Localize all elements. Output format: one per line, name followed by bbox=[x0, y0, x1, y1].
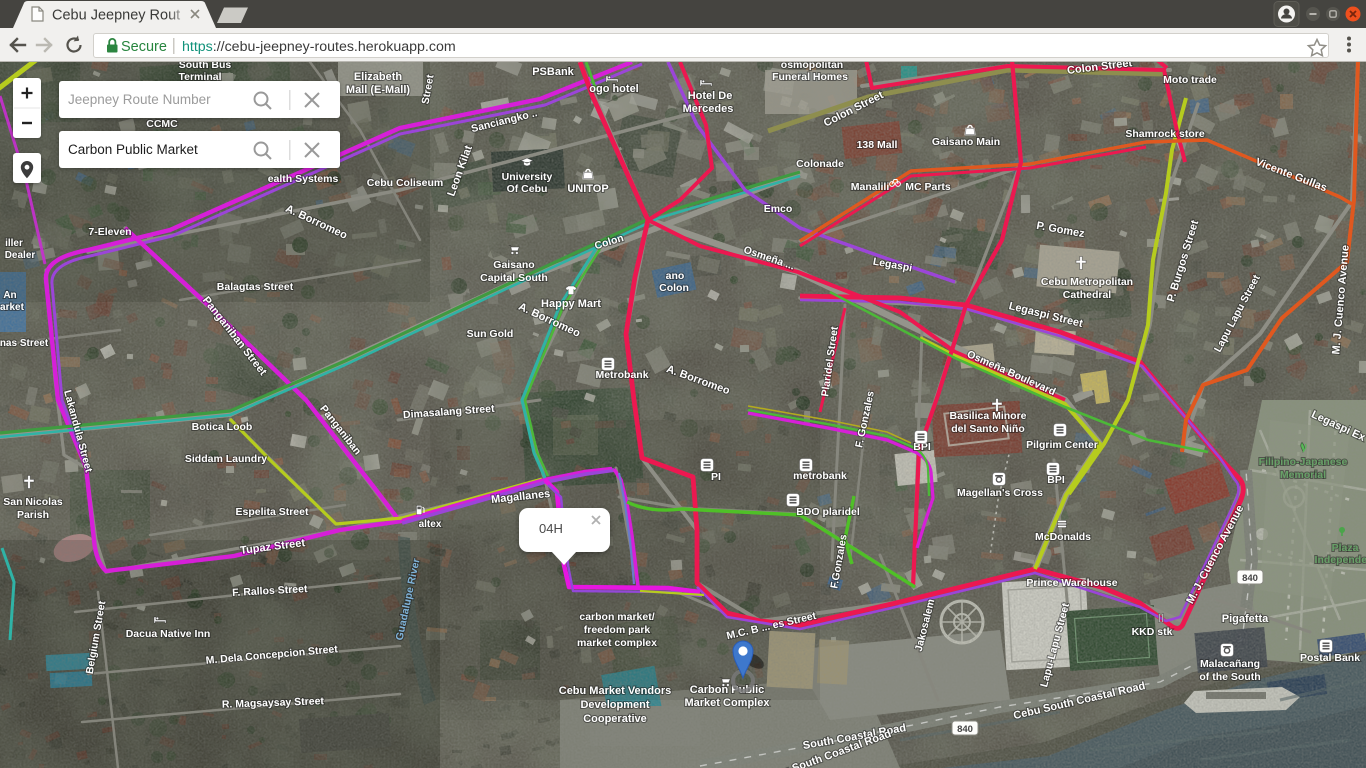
svg-text:Postal Bank: Postal Bank bbox=[1300, 652, 1360, 664]
svg-text:UNITOP: UNITOP bbox=[567, 183, 608, 195]
svg-text:Sun Gold: Sun Gold bbox=[467, 328, 514, 340]
svg-text:Gaisano Main: Gaisano Main bbox=[932, 136, 1000, 148]
svg-text:Plaza: Plaza bbox=[1332, 542, 1359, 554]
svg-text:Magellan's Cross: Magellan's Cross bbox=[957, 487, 1043, 499]
svg-text:Cathedral: Cathedral bbox=[1063, 289, 1112, 301]
svg-text:Development: Development bbox=[580, 699, 649, 711]
svg-text:Parish: Parish bbox=[17, 509, 49, 521]
svg-text:Pigafetta: Pigafetta bbox=[1222, 613, 1269, 625]
svg-text:Of Cebu: Of Cebu bbox=[507, 183, 548, 195]
svg-text:Emco: Emco bbox=[764, 203, 793, 215]
svg-text:altex: altex bbox=[419, 519, 442, 530]
svg-text:ano: ano bbox=[666, 270, 685, 282]
svg-text:Espelita Street: Espelita Street bbox=[236, 506, 309, 518]
svg-text:7-Eleven: 7-Eleven bbox=[88, 226, 131, 238]
svg-text:Gaisano: Gaisano bbox=[493, 259, 534, 271]
svg-text:University: University bbox=[502, 171, 553, 183]
svg-text:138 Mall: 138 Mall bbox=[857, 139, 898, 151]
svg-text:Balagtas Street: Balagtas Street bbox=[217, 281, 294, 293]
svg-text:freedom park: freedom park bbox=[584, 624, 651, 636]
svg-text:Independen: Independen bbox=[1315, 554, 1366, 566]
svg-text:Manalili: Manalili bbox=[851, 181, 890, 193]
svg-text:Siddam Laundry: Siddam Laundry bbox=[185, 453, 267, 465]
svg-text:Mall (E-Mall): Mall (E-Mall) bbox=[346, 84, 411, 96]
svg-text:Malacañang: Malacañang bbox=[1200, 658, 1260, 670]
svg-text:iller: iller bbox=[5, 238, 23, 249]
svg-text:Capital South: Capital South bbox=[480, 272, 548, 284]
svg-text:Prince Warehouse: Prince Warehouse bbox=[1026, 577, 1117, 589]
svg-text:Filipino-Japanese: Filipino-Japanese bbox=[1259, 456, 1348, 468]
svg-text:Botica Loob: Botica Loob bbox=[192, 421, 253, 433]
svg-text:840: 840 bbox=[957, 724, 973, 735]
svg-text:Cebu Market Vendors: Cebu Market Vendors bbox=[559, 685, 671, 697]
svg-text:Hotel De: Hotel De bbox=[688, 90, 733, 102]
svg-text:Cebu Jeepney Rout: Cebu Jeepney Rout bbox=[52, 8, 180, 24]
svg-text:Memorial: Memorial bbox=[1280, 469, 1326, 481]
svg-text:ealth Systems: ealth Systems bbox=[268, 173, 339, 185]
svg-text:Cebu Metropolitan: Cebu Metropolitan bbox=[1041, 276, 1133, 288]
svg-text:Moto trade: Moto trade bbox=[1163, 74, 1217, 86]
svg-text:Dacua Native Inn: Dacua Native Inn bbox=[126, 628, 211, 640]
svg-text:Market Complex: Market Complex bbox=[685, 697, 771, 709]
svg-text:Funeral Homes: Funeral Homes bbox=[772, 71, 848, 83]
svg-text:Shamrock store: Shamrock store bbox=[1125, 128, 1205, 140]
svg-text:Happy Mart: Happy Mart bbox=[541, 298, 601, 310]
svg-text:arket: arket bbox=[0, 302, 25, 313]
svg-text:nas Street: nas Street bbox=[0, 338, 49, 349]
svg-text:Mercedes: Mercedes bbox=[683, 103, 734, 115]
svg-text:Pilgrim Center: Pilgrim Center bbox=[1026, 439, 1098, 451]
svg-text:An: An bbox=[3, 290, 16, 301]
svg-text:MC Parts: MC Parts bbox=[905, 181, 951, 193]
svg-text:CCMC: CCMC bbox=[146, 118, 178, 130]
svg-text:Elizabeth: Elizabeth bbox=[354, 71, 403, 83]
svg-text:carbon market/: carbon market/ bbox=[579, 611, 654, 623]
svg-text:KKD stk: KKD stk bbox=[1132, 626, 1173, 638]
svg-text:Dealer: Dealer bbox=[5, 250, 36, 261]
svg-text:Cebu Coliseum: Cebu Coliseum bbox=[367, 177, 443, 189]
svg-text:San Nicolas: San Nicolas bbox=[3, 496, 63, 508]
svg-text:McDonalds: McDonalds bbox=[1035, 531, 1091, 543]
svg-text:ogo hotel: ogo hotel bbox=[589, 83, 639, 95]
svg-text:del Santo Niño: del Santo Niño bbox=[951, 423, 1025, 435]
svg-text:Colonade: Colonade bbox=[796, 158, 844, 170]
svg-text:840: 840 bbox=[1242, 573, 1258, 584]
svg-text:https://cebu-jeepney-routes.he: https://cebu-jeepney-routes.herokuapp.co… bbox=[182, 39, 456, 55]
svg-text:Secure: Secure bbox=[121, 39, 167, 55]
svg-text:PSBank: PSBank bbox=[532, 66, 574, 78]
svg-text:market complex: market complex bbox=[577, 637, 657, 649]
svg-text:of the South: of the South bbox=[1199, 671, 1260, 683]
svg-text:BDO plaridel: BDO plaridel bbox=[796, 506, 860, 518]
svg-text:Basilica Minore: Basilica Minore bbox=[949, 410, 1026, 422]
svg-text:PI: PI bbox=[711, 471, 721, 483]
svg-text:Colon: Colon bbox=[659, 282, 689, 294]
svg-text:Cooperative: Cooperative bbox=[583, 713, 647, 725]
